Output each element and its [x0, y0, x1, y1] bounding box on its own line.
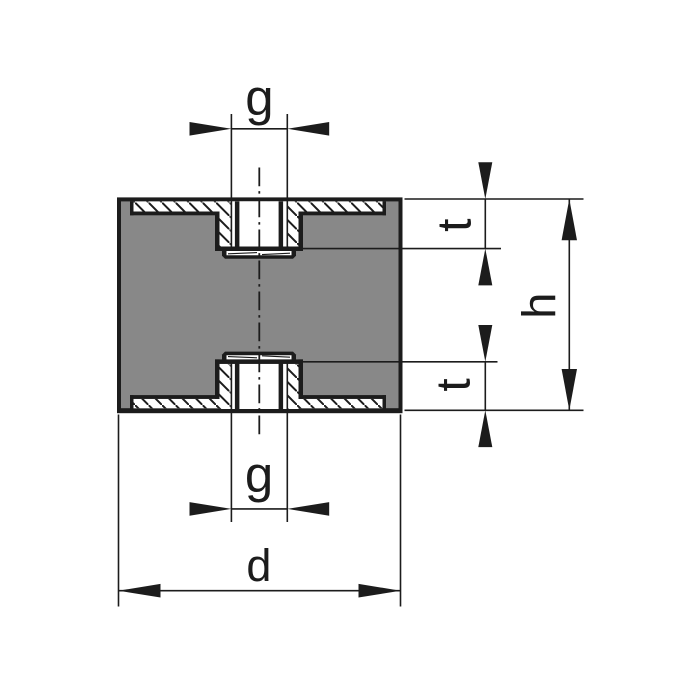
svg-text:t: t [428, 219, 481, 232]
svg-text:g: g [245, 446, 273, 503]
svg-text:g: g [245, 69, 273, 126]
svg-text:d: d [246, 540, 271, 591]
svg-text:h: h [513, 293, 566, 319]
svg-text:t: t [428, 378, 481, 391]
